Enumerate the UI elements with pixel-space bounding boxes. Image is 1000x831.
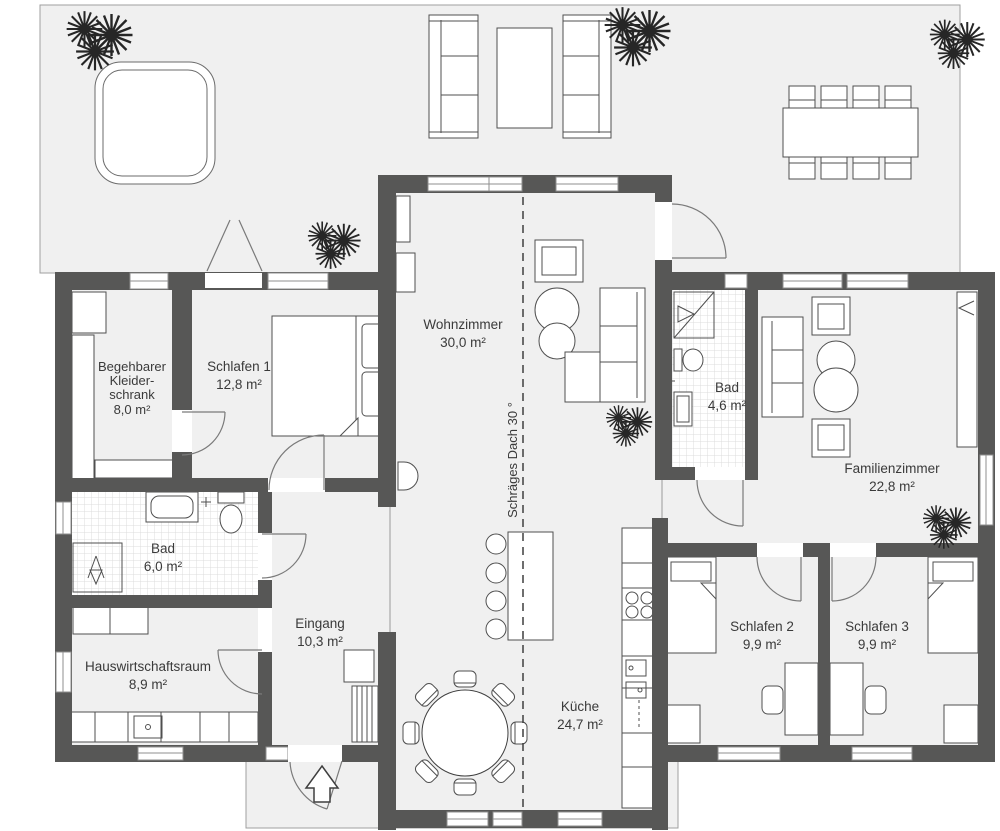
svg-text:9,9 m²: 9,9 m² xyxy=(743,637,782,652)
sink-small-bath xyxy=(674,392,692,426)
svg-text:Bad: Bad xyxy=(715,380,739,395)
kitchen-island xyxy=(508,532,553,640)
bar-stool xyxy=(486,619,506,639)
entry-bench xyxy=(344,650,374,682)
dresser-schlafen-3 xyxy=(944,705,978,743)
bar-stool xyxy=(486,591,506,611)
terrace-sofa-left xyxy=(429,15,478,138)
shelf-familienzimmer xyxy=(957,292,977,447)
hot-tub xyxy=(95,62,215,184)
svg-text:Eingang: Eingang xyxy=(295,616,345,631)
svg-text:Familienzimmer: Familienzimmer xyxy=(844,461,940,476)
armchair-familienzimmer-1 xyxy=(812,297,850,335)
terrace-table xyxy=(497,28,552,128)
svg-text:6,0 m²: 6,0 m² xyxy=(144,559,183,574)
svg-text:4,6 m²: 4,6 m² xyxy=(708,398,747,413)
floor-plan: Begehbarer Kleider- schrank 8,0 m² Schla… xyxy=(0,0,1000,831)
svg-text:9,9 m²: 9,9 m² xyxy=(858,637,897,652)
bed-schlafen-2 xyxy=(666,557,716,653)
dresser-schlafen-2 xyxy=(666,705,700,743)
svg-text:22,8 m²: 22,8 m² xyxy=(869,479,915,494)
svg-text:Küche: Küche xyxy=(561,699,599,714)
bar-stool xyxy=(486,563,506,583)
bed-schlafen-3 xyxy=(928,557,978,653)
svg-text:Schlafen 2: Schlafen 2 xyxy=(730,619,794,634)
svg-text:8,9 m²: 8,9 m² xyxy=(129,677,168,692)
armchair-familienzimmer-2 xyxy=(812,419,850,457)
bar-stool xyxy=(486,534,506,554)
svg-text:10,3 m²: 10,3 m² xyxy=(297,634,343,649)
terrace-sofa-right xyxy=(563,15,611,138)
svg-text:Hauswirtschaftsraum: Hauswirtschaftsraum xyxy=(85,659,211,674)
radiator xyxy=(352,686,378,742)
dining-table xyxy=(403,671,527,795)
toilet xyxy=(218,492,244,533)
utility-counter xyxy=(62,712,258,742)
roof-slope-label: Schräges Dach 30 ° xyxy=(505,402,520,518)
svg-text:Begehbarer: Begehbarer xyxy=(98,359,167,374)
desk-schlafen-3 xyxy=(830,663,863,735)
svg-text:12,8 m²: 12,8 m² xyxy=(216,377,262,392)
svg-text:schrank: schrank xyxy=(109,387,155,402)
floor-plan-canvas: Begehbarer Kleider- schrank 8,0 m² Schla… xyxy=(0,0,1000,831)
sofa-familienzimmer xyxy=(762,317,803,417)
kitchen-counter xyxy=(622,528,657,808)
chair-schlafen-2 xyxy=(762,686,783,714)
svg-text:8,0 m²: 8,0 m² xyxy=(114,402,152,417)
svg-text:Wohnzimmer: Wohnzimmer xyxy=(423,317,503,332)
armchair-wohnzimmer xyxy=(535,240,583,282)
sideboard-2 xyxy=(396,253,415,292)
svg-text:24,7 m²: 24,7 m² xyxy=(557,717,603,732)
svg-text:Schlafen 1: Schlafen 1 xyxy=(207,359,271,374)
desk-schlafen-2 xyxy=(785,663,818,735)
svg-text:Bad: Bad xyxy=(151,541,175,556)
svg-text:30,0 m²: 30,0 m² xyxy=(440,335,486,350)
bed-schlafen-1 xyxy=(272,316,390,436)
svg-text:Schlafen 3: Schlafen 3 xyxy=(845,619,909,634)
svg-text:Kleider-: Kleider- xyxy=(110,373,155,388)
round-table-4 xyxy=(814,368,858,412)
chair-schlafen-3 xyxy=(865,686,886,714)
sideboard-1 xyxy=(396,196,410,242)
